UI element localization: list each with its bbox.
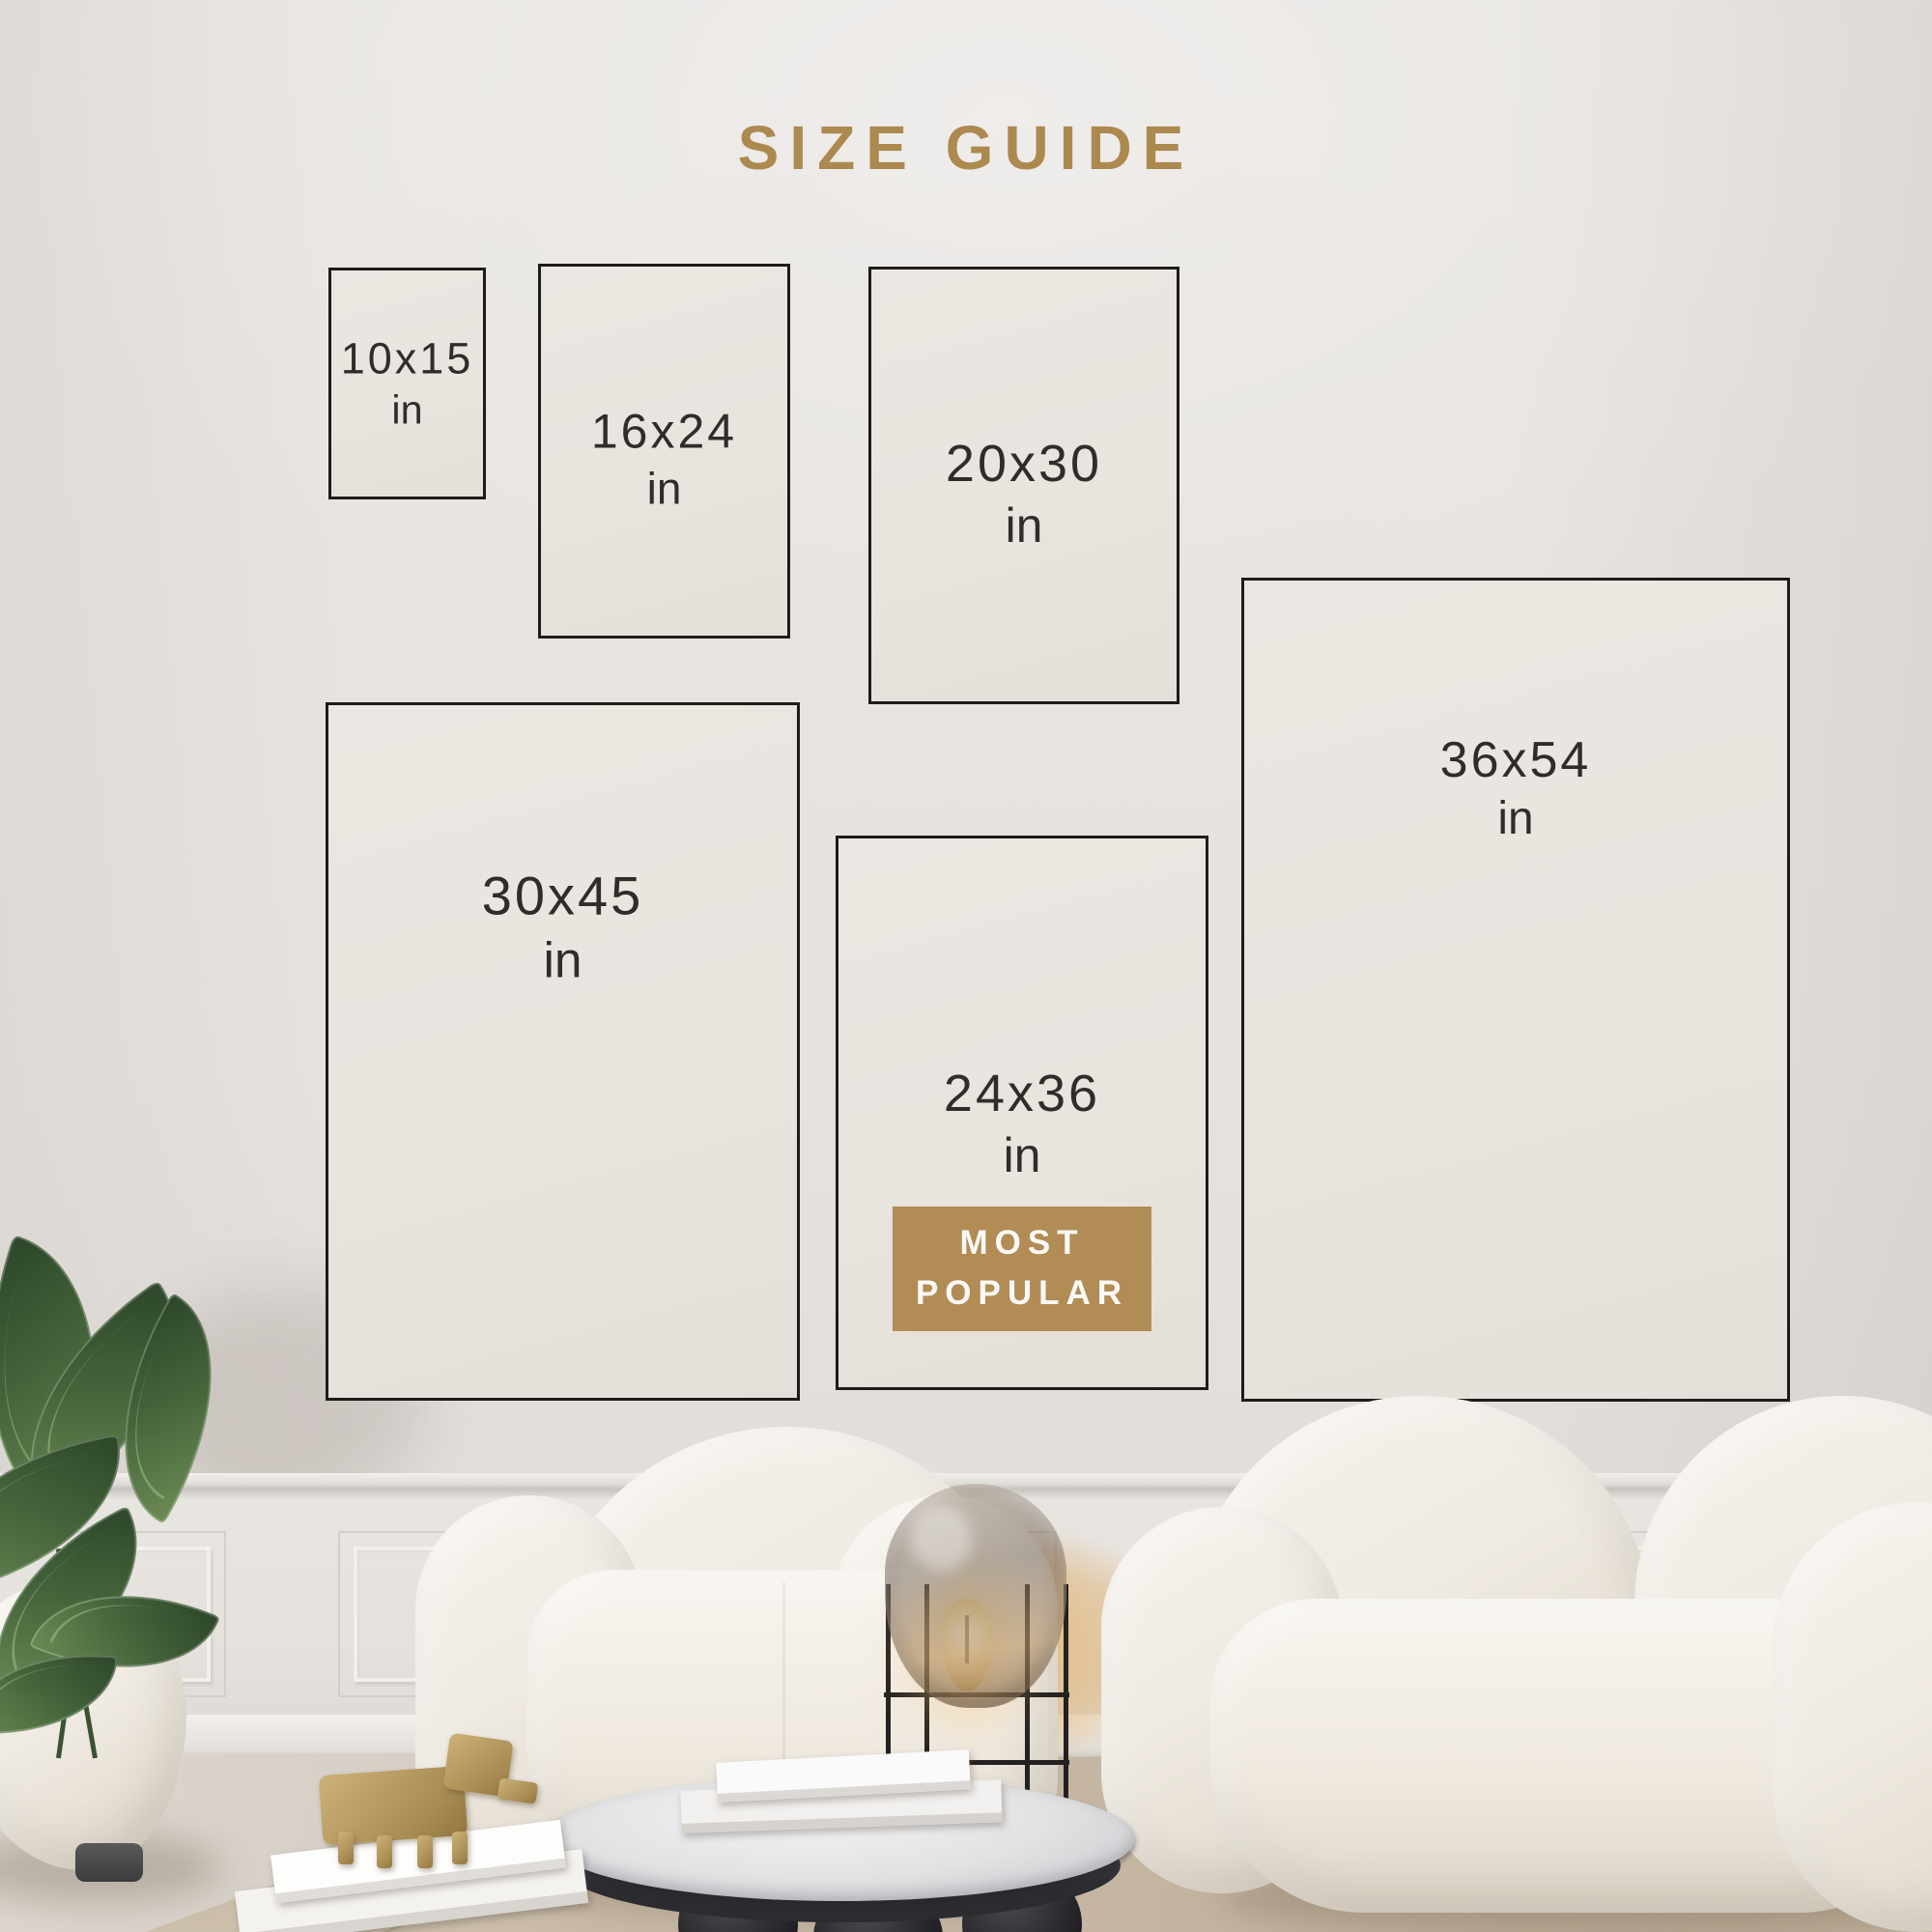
figurine-leg bbox=[417, 1835, 433, 1868]
size-value: 24x36 bbox=[838, 1063, 1206, 1126]
figurine-leg bbox=[338, 1832, 354, 1864]
size-guide-mockup: SIZE GUIDE 10x15 in 16x24 in 20x30 in 30… bbox=[0, 0, 1932, 1932]
size-label: 20x30 in bbox=[871, 433, 1177, 554]
size-label: 16x24 in bbox=[541, 402, 787, 515]
size-box-16x24: 16x24 in bbox=[538, 264, 790, 639]
size-box-30x45: 30x45 in bbox=[326, 702, 800, 1401]
size-value: 30x45 bbox=[328, 864, 797, 929]
size-box-36x54: 36x54 in bbox=[1241, 578, 1790, 1402]
size-unit: in bbox=[541, 461, 787, 515]
size-box-20x30: 20x30 in bbox=[868, 267, 1179, 704]
size-unit: in bbox=[838, 1126, 1206, 1185]
size-guide-title: SIZE GUIDE bbox=[0, 112, 1932, 184]
lamp-glass-shade bbox=[885, 1484, 1066, 1708]
most-popular-badge: MOST POPULAR bbox=[893, 1207, 1151, 1331]
size-label: 24x36 in bbox=[838, 1063, 1206, 1184]
size-unit: in bbox=[1244, 792, 1787, 848]
size-label: 36x54 in bbox=[1244, 730, 1787, 848]
size-value: 36x54 bbox=[1244, 730, 1787, 791]
size-box-24x36: 24x36 in MOST POPULAR bbox=[836, 836, 1208, 1390]
size-value: 16x24 bbox=[541, 402, 787, 461]
figurine-leg bbox=[377, 1835, 392, 1868]
ottoman-foot bbox=[75, 1843, 143, 1882]
badge-line-1: MOST bbox=[916, 1218, 1128, 1269]
size-value: 10x15 bbox=[331, 332, 483, 385]
size-label: 30x45 in bbox=[328, 864, 797, 990]
size-unit: in bbox=[871, 497, 1177, 555]
size-label: 10x15 in bbox=[331, 332, 483, 434]
size-unit: in bbox=[331, 385, 483, 435]
size-unit: in bbox=[328, 929, 797, 990]
sofa-arm-cushion bbox=[1773, 1502, 1932, 1932]
size-box-10x15: 10x15 in bbox=[328, 268, 486, 499]
size-value: 20x30 bbox=[871, 433, 1177, 497]
figurine-leg bbox=[452, 1832, 468, 1864]
badge-line-2: POPULAR bbox=[916, 1268, 1128, 1320]
